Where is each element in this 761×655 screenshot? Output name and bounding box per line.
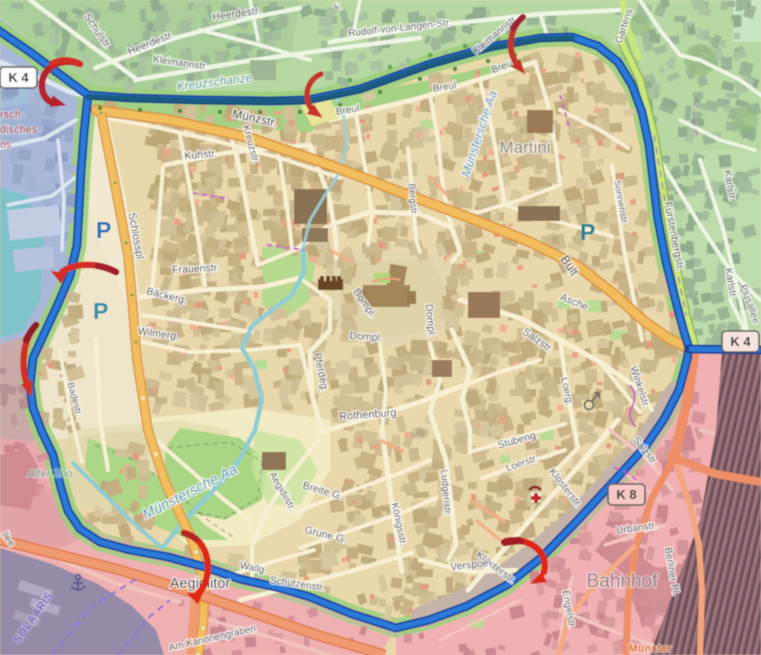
svg-text:K 4: K 4 (8, 70, 29, 85)
svg-text:Münster: Münster (629, 643, 673, 655)
svg-text:K 8: K 8 (616, 487, 636, 502)
svg-text:K 4: K 4 (730, 334, 751, 349)
svg-text:P: P (96, 217, 111, 243)
svg-text:Alter Zoo: Alter Zoo (27, 468, 73, 480)
svg-text:os: os (0, 139, 12, 151)
svg-text:Bahnhof: Bahnhof (587, 571, 659, 592)
svg-text:Martini: Martini (499, 138, 550, 157)
svg-text:P: P (93, 298, 108, 324)
svg-text:disches: disches (0, 124, 38, 136)
svg-text:P: P (580, 219, 595, 245)
svg-text:rsch-: rsch- (0, 109, 25, 121)
svg-text:Frauenstr.: Frauenstr. (172, 262, 220, 276)
svg-text:Dompl.: Dompl. (349, 330, 383, 344)
